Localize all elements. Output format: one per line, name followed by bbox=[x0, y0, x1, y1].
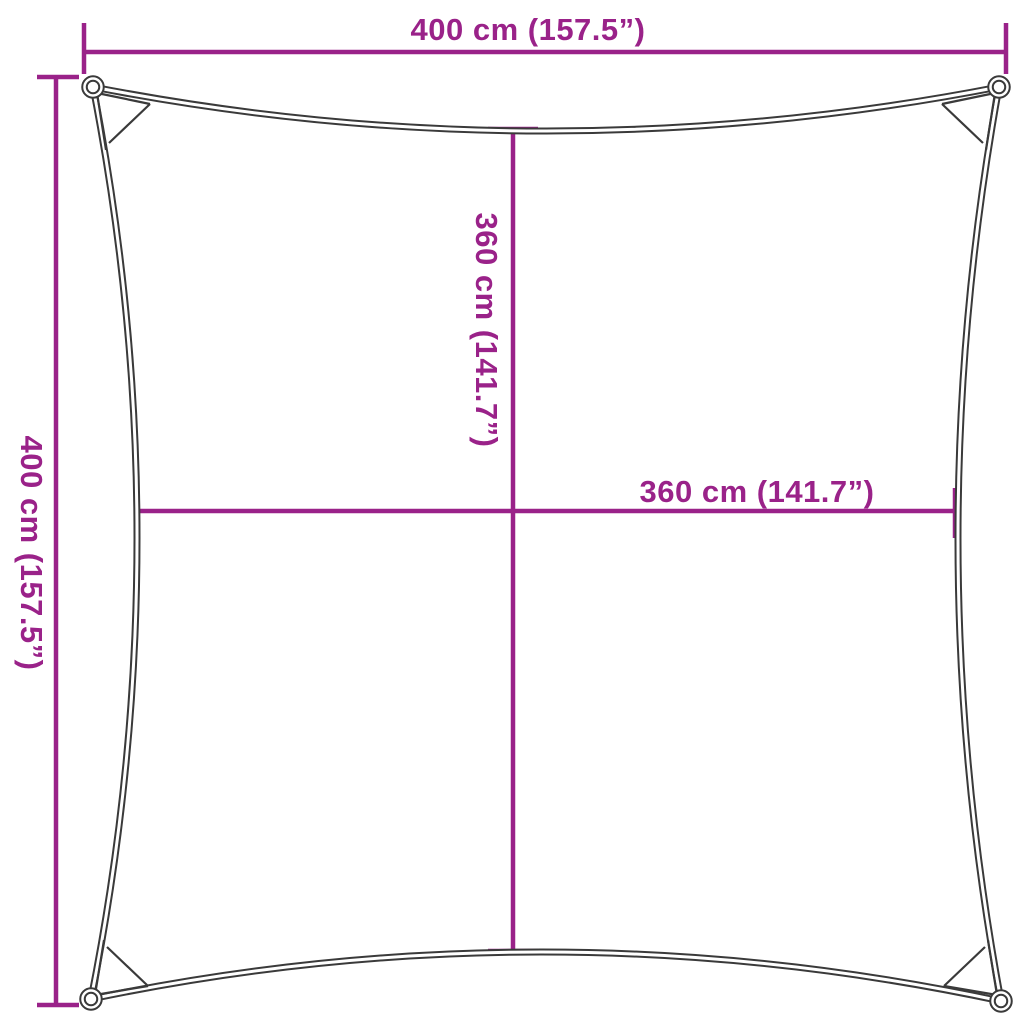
corner-seams bbox=[95, 93, 997, 995]
corner-seam-top-right bbox=[942, 93, 995, 150]
outer-height-label-group: 400 cm (157.5”) bbox=[14, 436, 49, 671]
inner-height-label-group: 360 cm (141.7”) bbox=[469, 213, 504, 448]
sail-outline bbox=[91, 87, 1001, 1001]
outer-height-label: 400 cm (157.5”) bbox=[14, 436, 49, 671]
corner-seam-top-left bbox=[97, 93, 150, 150]
corner-seam-bottom-left bbox=[95, 940, 148, 995]
inner-height-label: 360 cm (141.7”) bbox=[469, 213, 504, 448]
shade-sail-diagram-canvas: 400 cm (157.5”) 400 cm (157.5”) 360 cm (… bbox=[0, 0, 1024, 1024]
sail-edge-outer bbox=[91, 87, 1001, 1001]
corner-seam-bottom-right bbox=[944, 940, 997, 995]
dimension-diagram: 400 cm (157.5”) 400 cm (157.5”) 360 cm (… bbox=[0, 0, 1024, 1024]
inner-width-label: 360 cm (141.7”) bbox=[640, 474, 875, 509]
sail-edge-inner bbox=[91, 87, 1001, 1001]
outer-width-label: 400 cm (157.5”) bbox=[411, 12, 646, 47]
corner-rings bbox=[83, 79, 1010, 1010]
